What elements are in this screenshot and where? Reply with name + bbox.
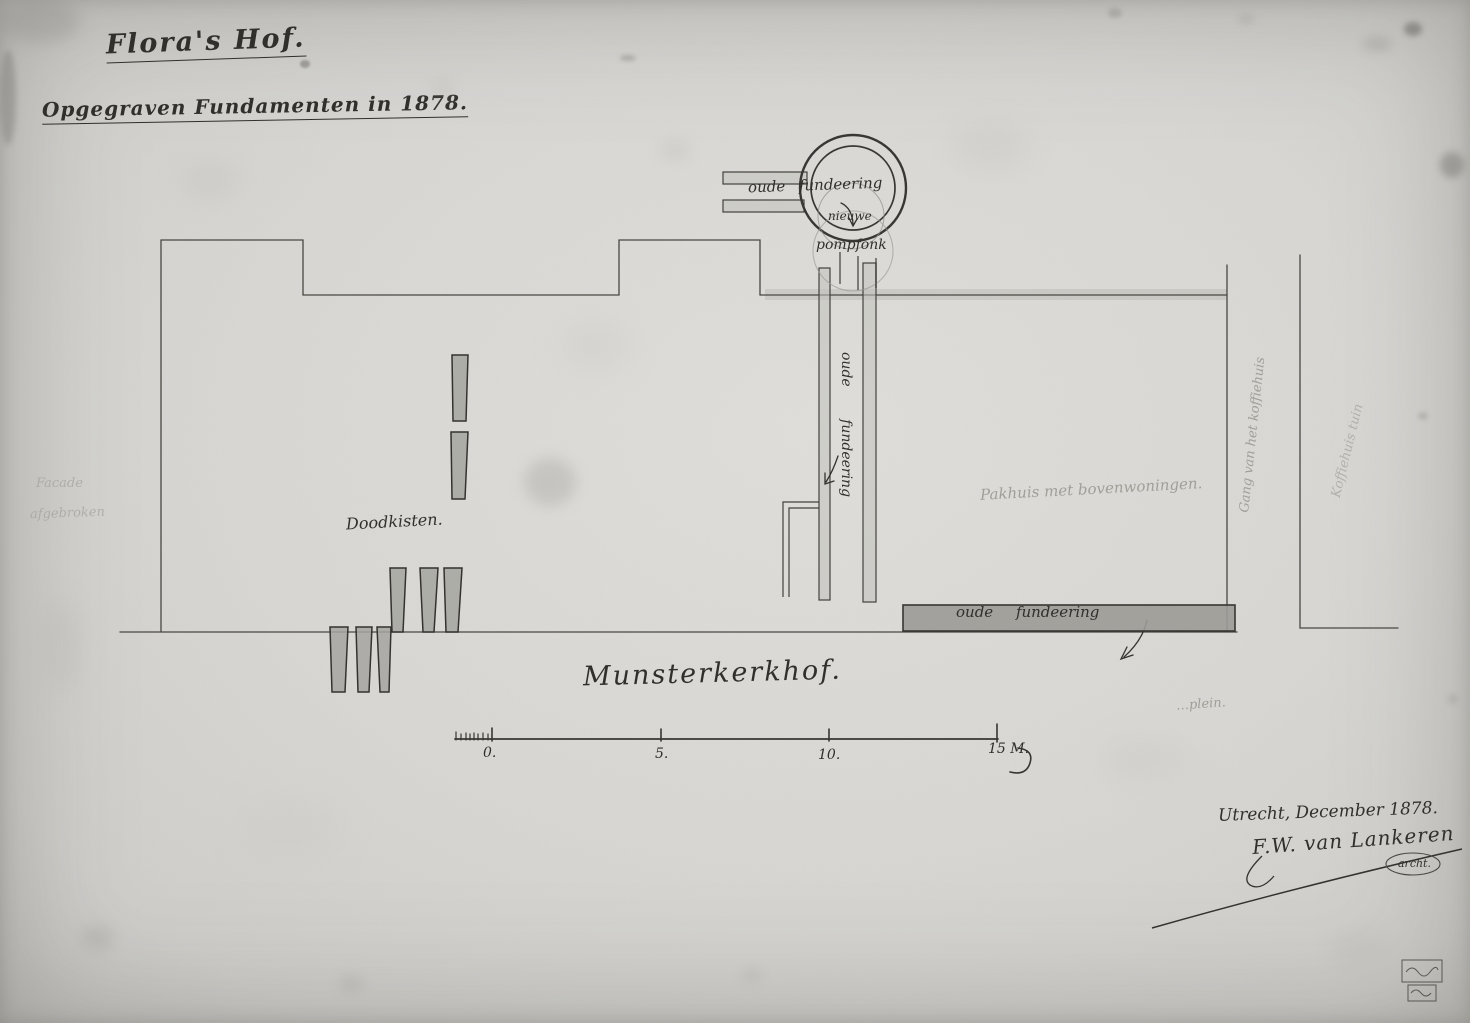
coffin [444,568,462,632]
facade-note-line2: afgebroken [30,506,105,522]
facade-note-line1: Facade [36,477,83,491]
wall-old-foundation-label: oude fundeering [838,352,853,497]
coffin [330,627,348,692]
bar-old-foundation-label: oude fundeering [956,605,1099,621]
coffin [377,627,391,692]
stamp-script-lower [1411,990,1431,996]
stamp-script-upper [1406,967,1438,976]
scale-label-0: 0. [483,746,496,761]
coffin [356,627,372,692]
well-new-label: nieuwe [828,210,872,223]
pump-label: pompfonk [816,238,887,253]
coffin [420,568,438,632]
cemetery-label: Munsterkerkhof. [583,657,843,692]
coffin [390,568,406,632]
archive-stamp [1402,960,1442,1001]
coffin [452,355,468,421]
scale-label-5: 5. [655,747,668,762]
stamp-box-lower [1408,985,1436,1001]
scanned-plan-document: Flora's Hof. Opgegraven Fundamenten in 1… [0,0,1470,1023]
foundation-jog-wall [783,502,819,597]
foundation-strip-east [863,263,876,602]
signature-loop [1247,856,1274,887]
scale-label-15m: 15 M. [988,742,1029,757]
scale-label-10: 10. [818,748,840,763]
coffin [451,432,468,499]
foundation-strip-to-well-lower [723,200,804,212]
scale-bar [455,724,1031,773]
foundation-strip-west [819,268,830,600]
stamp-box-upper [1402,960,1442,982]
signature-title: archt. [1398,858,1431,870]
